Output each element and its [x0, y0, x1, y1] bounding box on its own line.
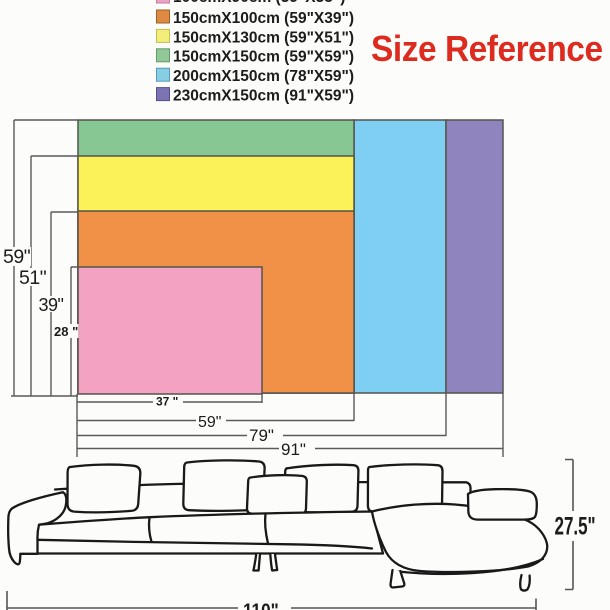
svg-text:27.5": 27.5"	[555, 512, 596, 540]
svg-text:79": 79"	[249, 426, 274, 445]
svg-text:230cmX150cm (91"X59"): 230cmX150cm (91"X59")	[173, 88, 354, 105]
svg-text:150cmX150cm (59"X59"): 150cmX150cm (59"X59")	[173, 49, 354, 66]
svg-text:Size Reference: Size Reference	[371, 30, 603, 69]
svg-text:59": 59"	[198, 414, 221, 431]
svg-text:110": 110"	[243, 600, 279, 610]
svg-text:28 ": 28 "	[54, 324, 78, 339]
svg-text:150cmX100cm (59"X39"): 150cmX100cm (59"X39")	[173, 10, 354, 27]
svg-text:100cmX90cm (39"X35"): 100cmX90cm (39"X35")	[173, 0, 345, 6]
svg-text:51": 51"	[19, 267, 47, 289]
svg-text:200cmX150cm (78"X59"): 200cmX150cm (78"X59")	[173, 68, 354, 85]
svg-text:59": 59"	[3, 246, 31, 268]
svg-text:150cmX130cm (59"X51"): 150cmX130cm (59"X51")	[173, 29, 354, 46]
svg-text:39": 39"	[39, 295, 64, 315]
svg-text:37 ": 37 "	[156, 395, 178, 409]
svg-text:91": 91"	[281, 440, 306, 459]
